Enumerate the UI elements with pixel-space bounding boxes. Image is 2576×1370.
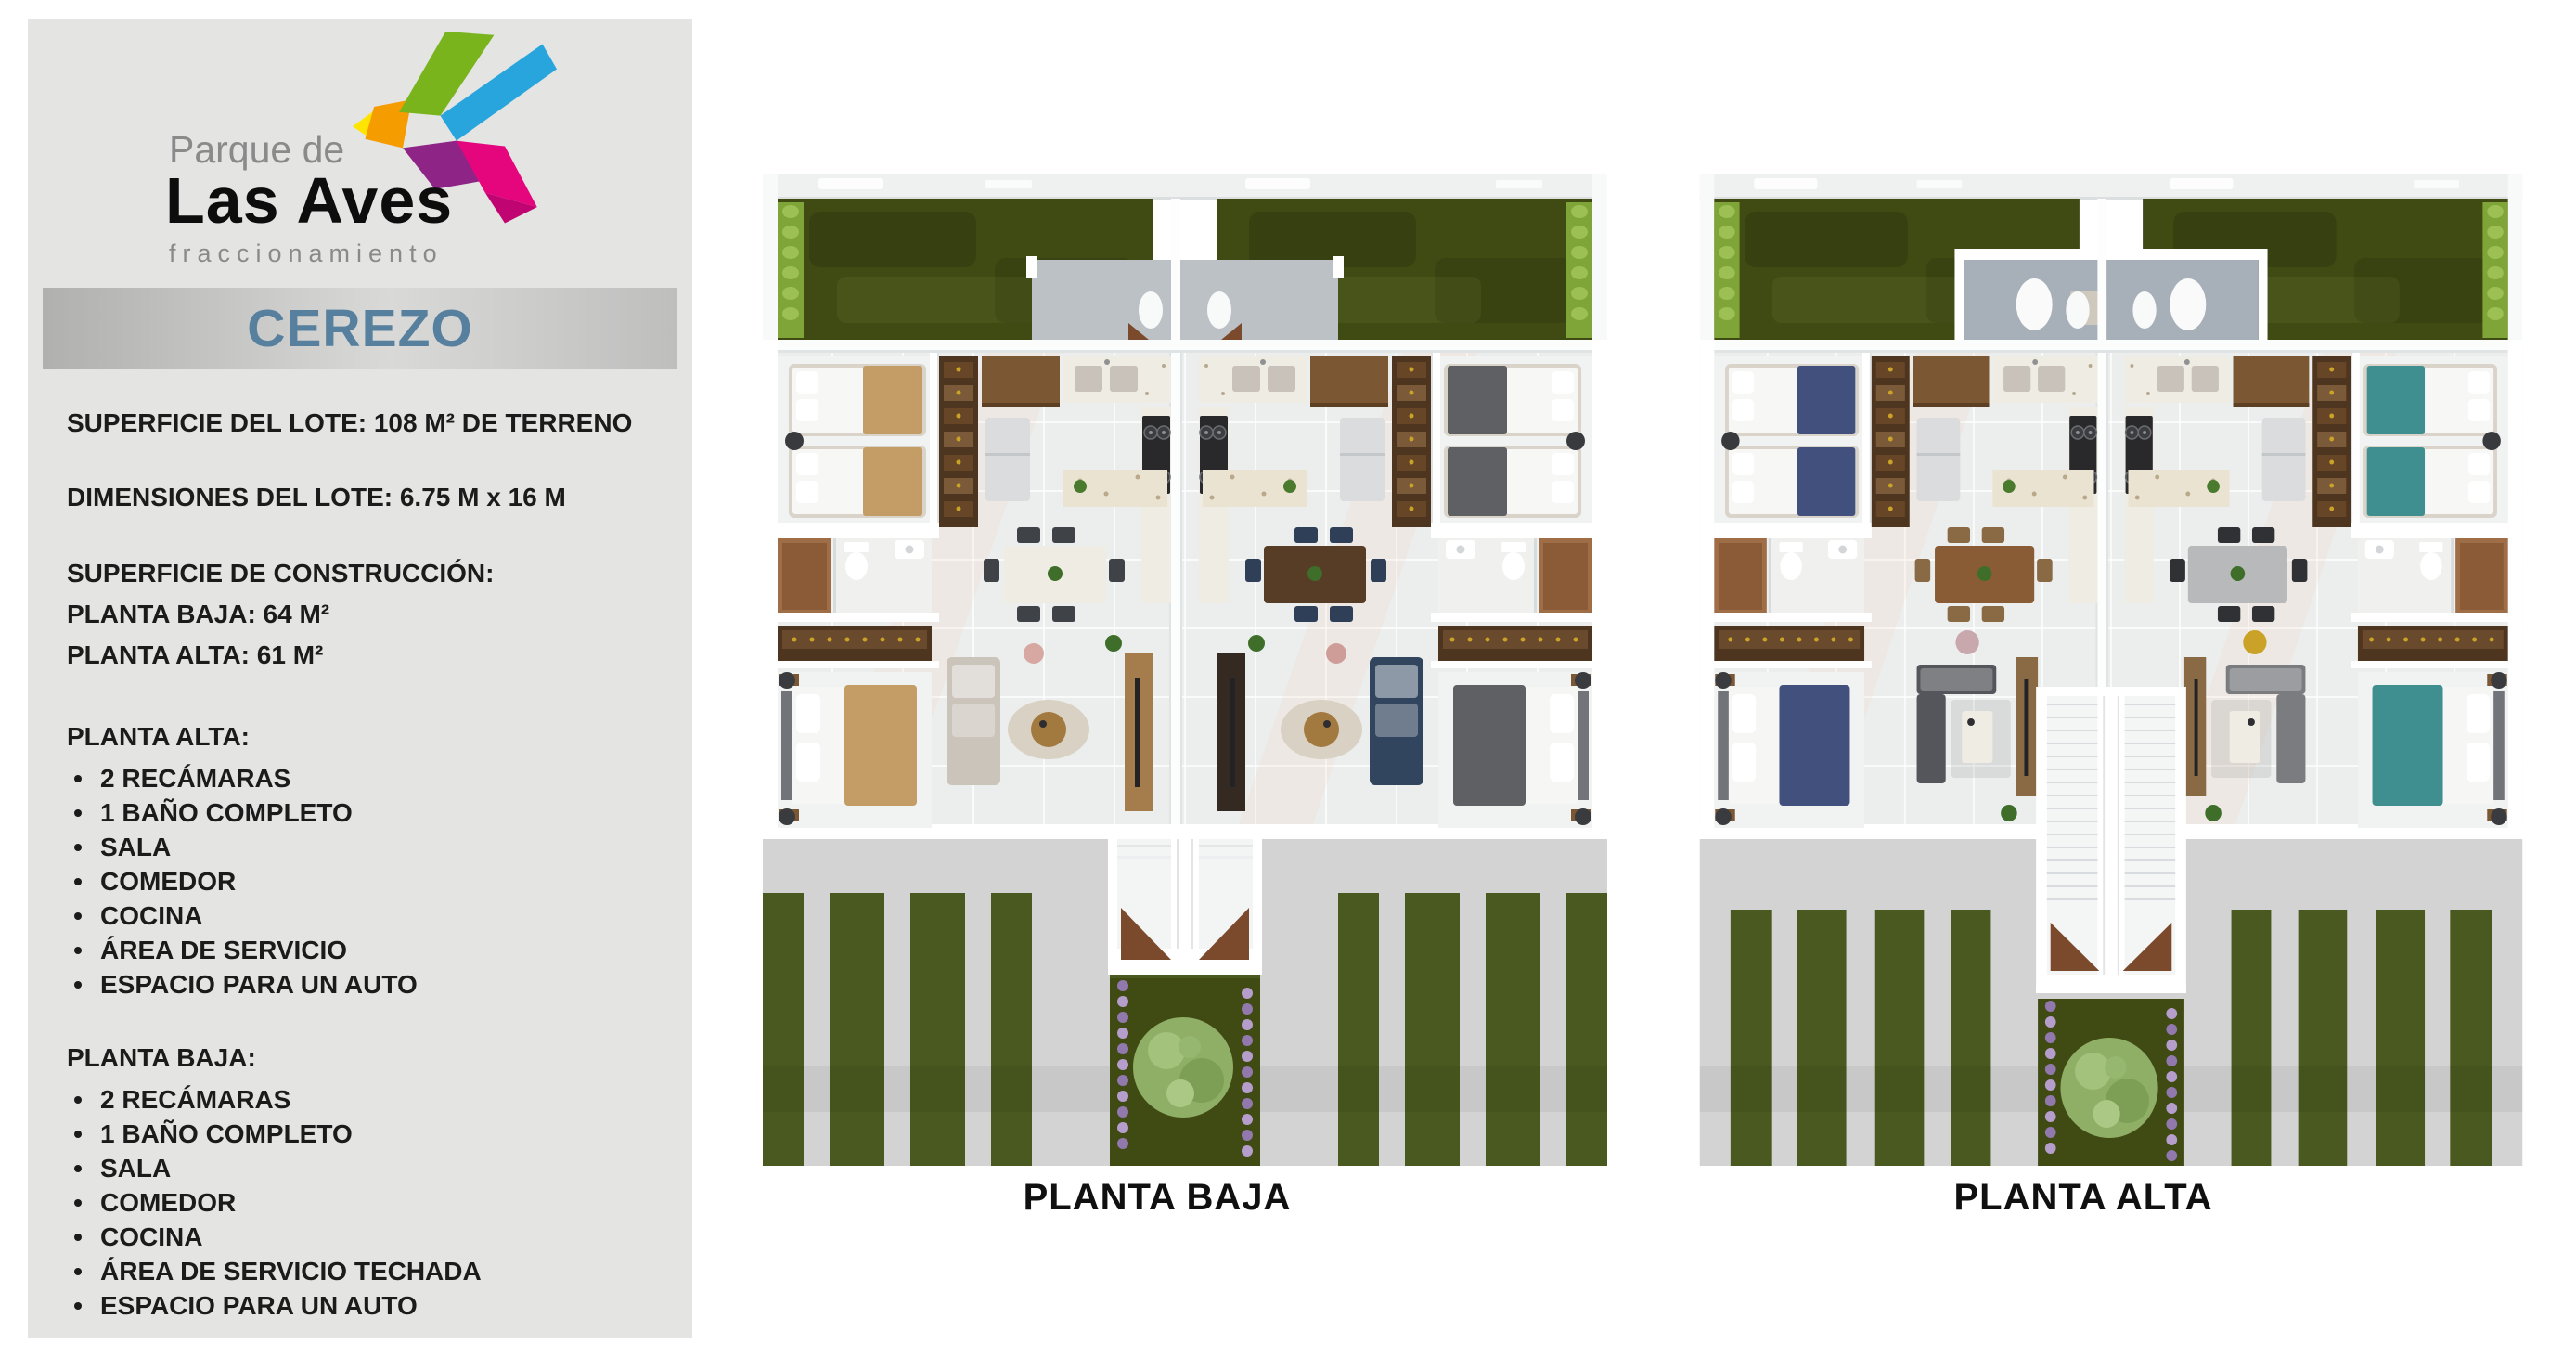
planta-baja-feature-list: 2 RECÁMARAS 1 BAÑO COMPLETO SALA COMEDOR… [67, 1082, 482, 1323]
brand-logo: Parque de Las Aves fraccionamiento [28, 19, 692, 288]
list-item: SALA [67, 1151, 482, 1185]
list-item: COMEDOR [67, 1185, 482, 1220]
list-item: COMEDOR [67, 864, 418, 898]
list-item: ÁREA DE SERVICIO [67, 933, 418, 967]
list-item: ESPACIO PARA UN AUTO [67, 1288, 482, 1323]
list-item: 2 RECÁMARAS [67, 761, 418, 795]
list-item: 1 BAÑO COMPLETO [67, 1117, 482, 1151]
construction-heading: SUPERFICIE DE CONSTRUCCIÓN: [67, 559, 494, 588]
planta-baja-heading: PLANTA BAJA: [67, 1043, 256, 1073]
brand-name-main: Las Aves [165, 163, 453, 238]
info-sidebar: Parque de Las Aves fraccionamiento CEREZ… [28, 19, 692, 1338]
model-banner: CEREZO [43, 288, 677, 369]
construction-planta-alta: PLANTA ALTA: 61 M² [67, 640, 323, 670]
list-item: 2 RECÁMARAS [67, 1082, 482, 1117]
list-item: 1 BAÑO COMPLETO [67, 795, 418, 830]
lot-dimensions-text: DIMENSIONES DEL LOTE: 6.75 M x 16 M [67, 483, 566, 512]
list-item: SALA [67, 830, 418, 864]
list-item: COCINA [67, 1220, 482, 1254]
model-name: CEREZO [247, 298, 473, 359]
floorplan-planta-alta [1691, 174, 2531, 1175]
floorplan-planta-baja [753, 174, 1616, 1175]
lot-surface-text: SUPERFICIE DEL LOTE: 108 M² DE TERRENO [67, 408, 632, 438]
planta-baja-label: PLANTA BAJA [726, 1177, 1589, 1219]
planta-alta-feature-list: 2 RECÁMARAS 1 BAÑO COMPLETO SALA COMEDOR… [67, 761, 418, 1002]
flyer-page: Parque de Las Aves fraccionamiento CEREZ… [0, 0, 2576, 1370]
list-item: ESPACIO PARA UN AUTO [67, 967, 418, 1002]
list-item: COCINA [67, 898, 418, 933]
planta-alta-label: PLANTA ALTA [1663, 1177, 2504, 1219]
planta-alta-heading: PLANTA ALTA: [67, 722, 250, 752]
list-item: ÁREA DE SERVICIO TECHADA [67, 1254, 482, 1288]
construction-planta-baja: PLANTA BAJA: 64 M² [67, 600, 329, 629]
brand-name-sub: fraccionamiento [169, 239, 444, 268]
